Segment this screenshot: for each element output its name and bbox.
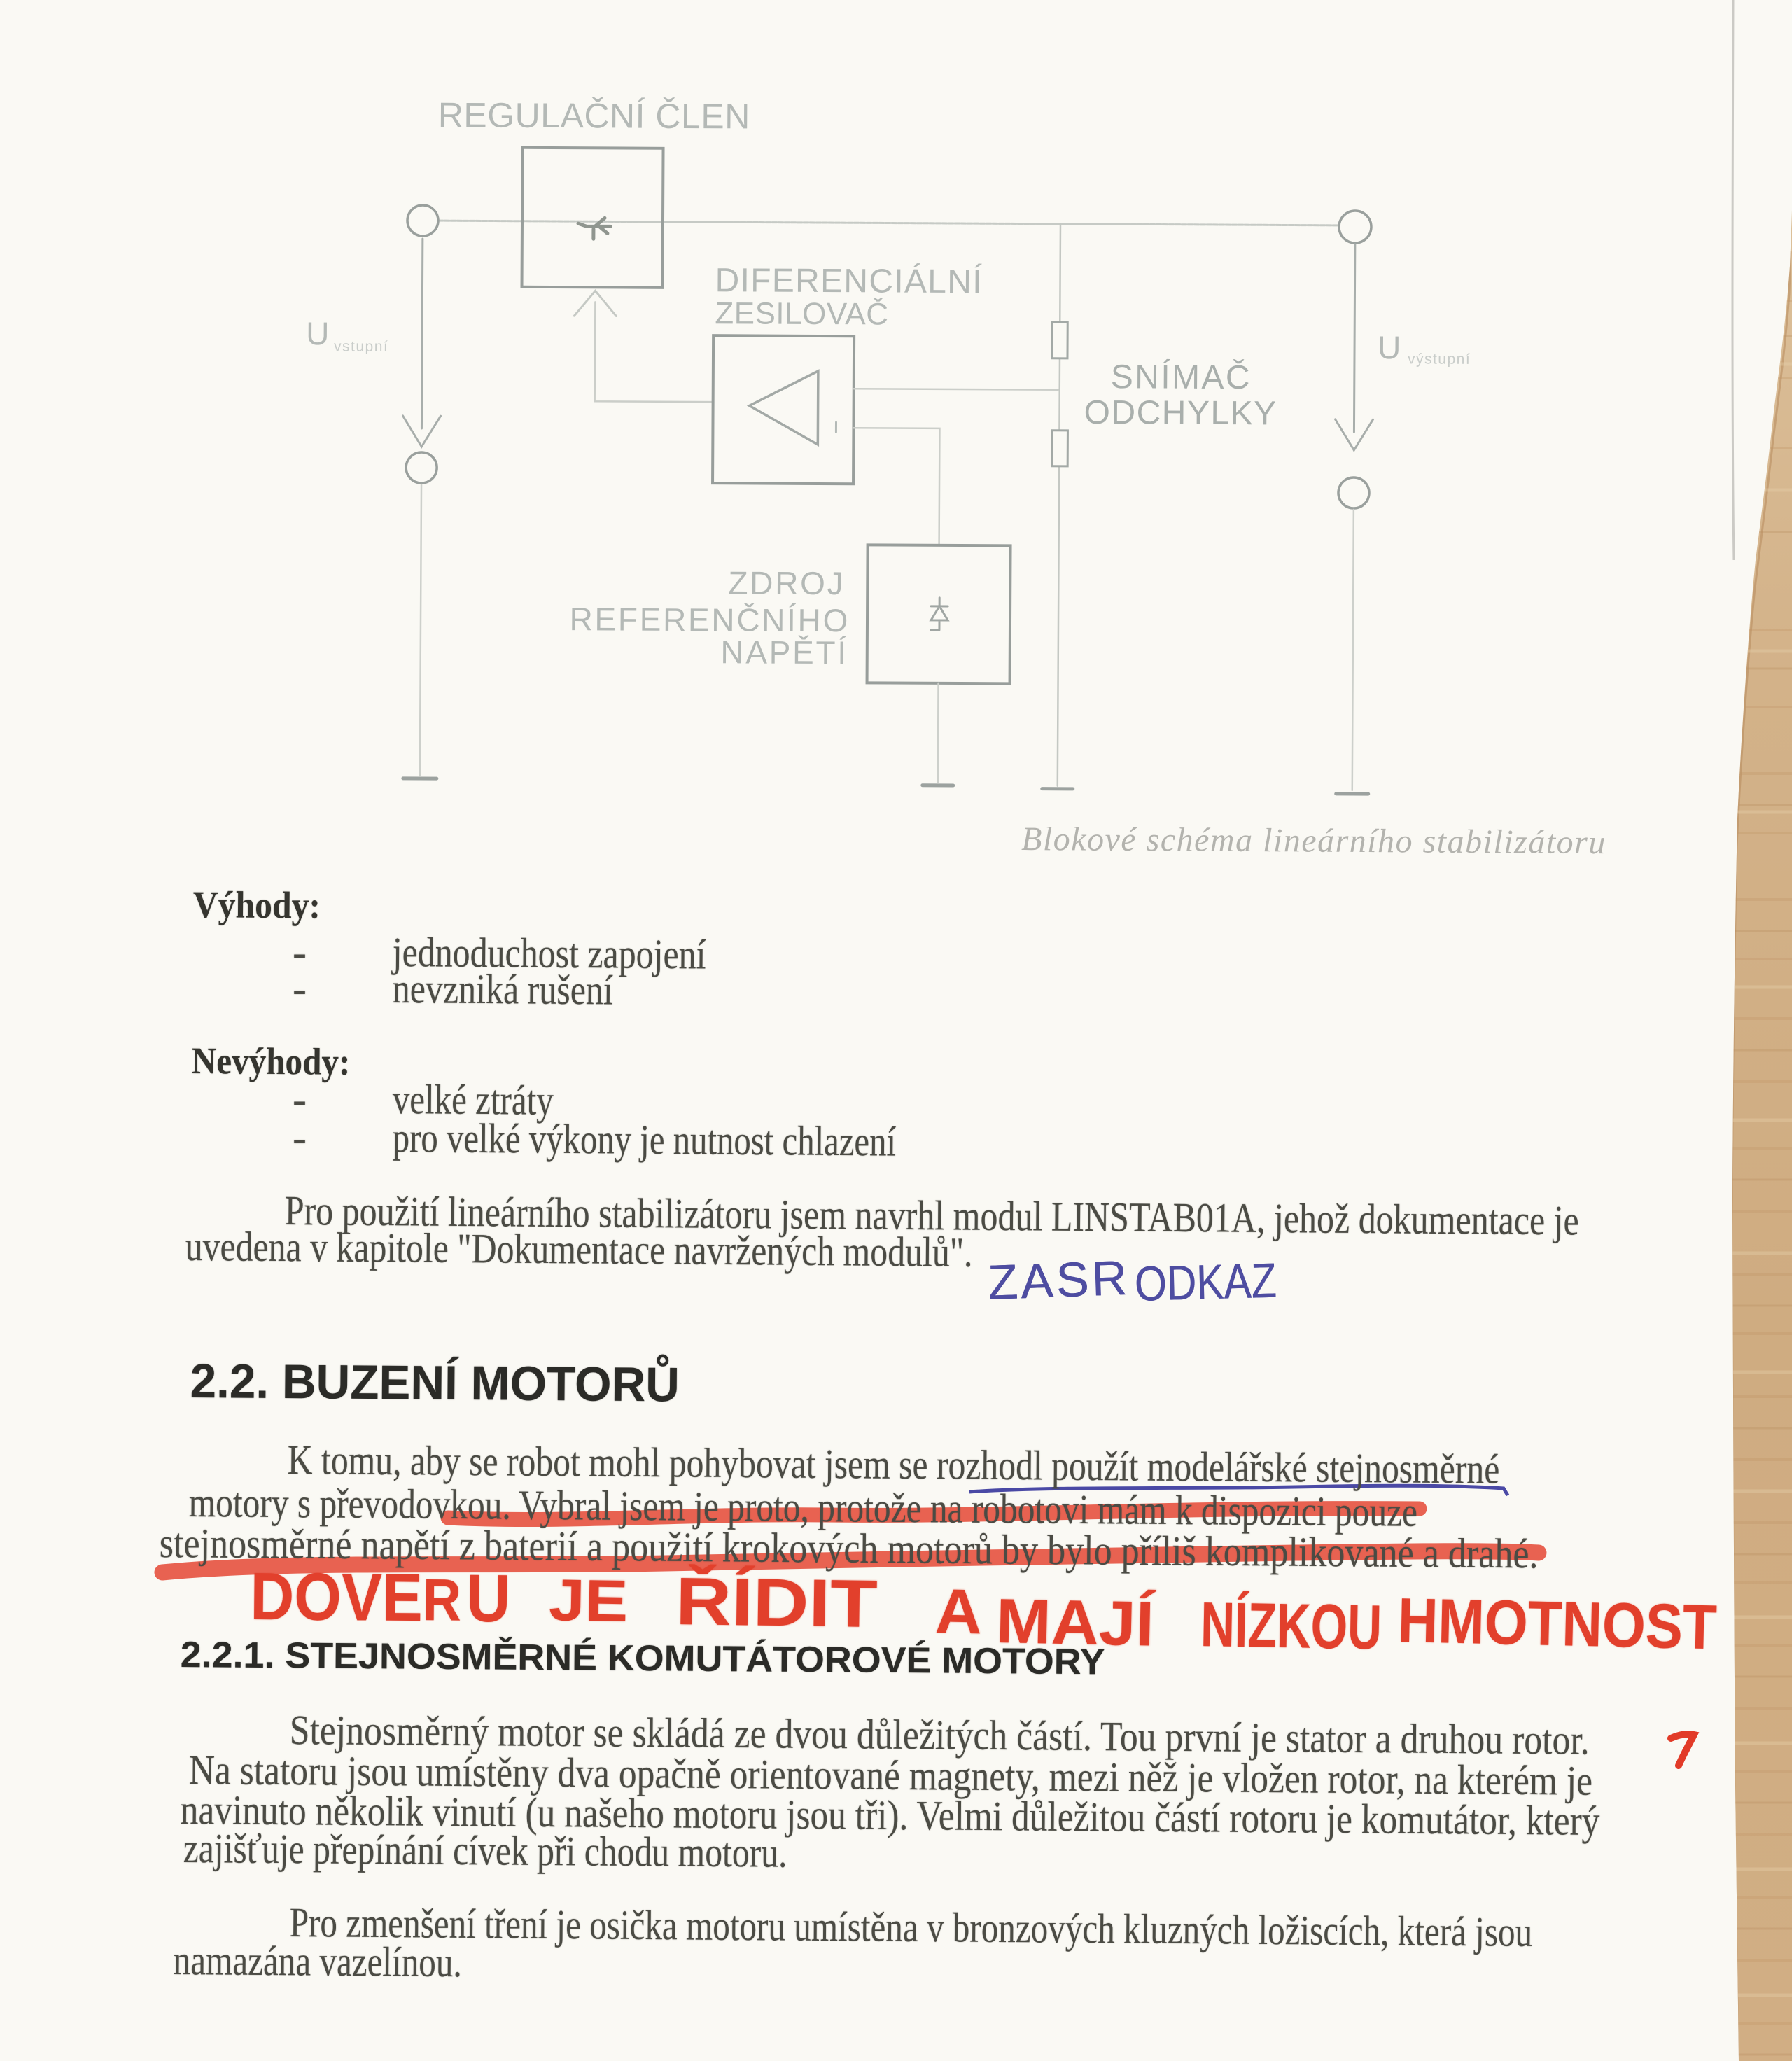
svg-text:Blokové schéma lineárního stab: Blokové schéma lineárního stabilizátoru	[1021, 820, 1606, 861]
svg-text:U: U	[306, 315, 330, 351]
svg-text:vstupní: vstupní	[334, 338, 388, 354]
svg-text:REFERENČNÍHO: REFERENČNÍHO	[569, 601, 850, 638]
svg-text:REGULAČNÍ ČLEN: REGULAČNÍ ČLEN	[438, 95, 750, 136]
svg-text:U: U	[1378, 329, 1401, 365]
svg-text:ZDROJ: ZDROJ	[728, 564, 845, 601]
svg-text:ZESILOVAČ: ZESILOVAČ	[715, 295, 888, 331]
svg-text:NAPĚTÍ: NAPĚTÍ	[720, 634, 848, 671]
svg-text:ODCHYLKY: ODCHYLKY	[1084, 394, 1277, 432]
svg-text:výstupní: výstupní	[1408, 351, 1471, 367]
svg-text:SNÍMAČ: SNÍMAČ	[1111, 358, 1252, 396]
svg-text:DIFERENCIÁLNÍ: DIFERENCIÁLNÍ	[715, 262, 983, 300]
